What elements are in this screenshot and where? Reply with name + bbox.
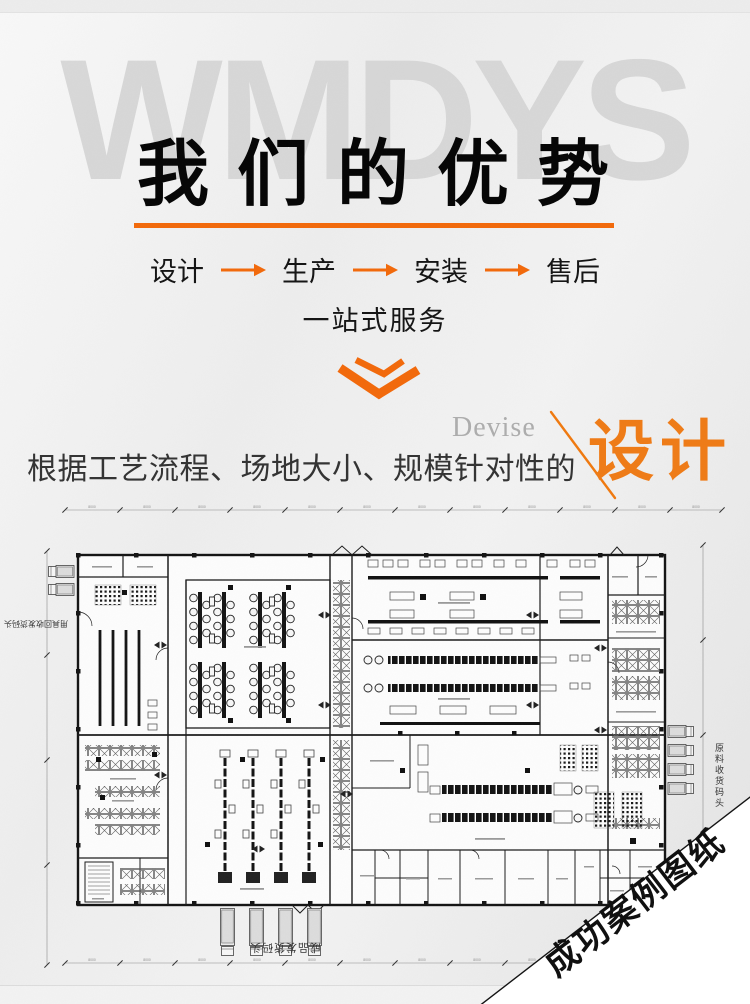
flow-step-install: 安装 [414, 250, 468, 289]
left-dock-label: 用具回收发货码头 [4, 619, 68, 629]
svg-text:8000: 8000 [363, 505, 371, 509]
svg-text:8000: 8000 [253, 505, 261, 509]
svg-text:8000: 8000 [308, 958, 316, 962]
svg-text:8000: 8000 [198, 958, 206, 962]
design-keyword: 设计 [588, 398, 732, 494]
design-description: 根据工艺流程、场地大小、规模针对性的 [27, 444, 576, 488]
svg-text:8000: 8000 [253, 958, 261, 962]
svg-text:8000: 8000 [198, 505, 206, 509]
service-flow: 设计 生产 安装 售后 [0, 250, 750, 289]
svg-text:8000: 8000 [528, 505, 536, 509]
svg-text:8000: 8000 [638, 505, 646, 509]
page-title: 我 们 的 优 势 [0, 136, 750, 215]
flow-step-design: 设计 [150, 250, 204, 289]
promo-page: WMDYS 我 们 的 优 势 设计 生产 安装 售后 一站式服务 Devise… [0, 0, 750, 1004]
top-edge-strip [0, 0, 750, 13]
design-english-label: Devise [452, 412, 536, 444]
title-underline [134, 223, 614, 228]
svg-text:8000: 8000 [143, 958, 151, 962]
flow-step-production: 生产 [282, 250, 336, 289]
svg-text:8000: 8000 [363, 958, 371, 962]
svg-text:8000: 8000 [88, 505, 96, 509]
svg-text:8000: 8000 [473, 505, 481, 509]
flow-arrow-icon [484, 263, 530, 277]
svg-text:8000: 8000 [418, 958, 426, 962]
double-chevron-down-icon [332, 354, 422, 400]
svg-text:8000: 8000 [583, 505, 591, 509]
svg-text:8000: 8000 [692, 505, 700, 509]
ribbon-banner: 成功案例图纸 [470, 780, 750, 1004]
bottom-dock-label: 成品发货码头 [249, 941, 321, 955]
flow-step-aftersale: 售后 [546, 250, 600, 289]
flow-arrow-icon [352, 263, 398, 277]
flow-arrow-icon [220, 263, 266, 277]
one-stop-service-label: 一站式服务 [0, 299, 750, 338]
svg-text:8000: 8000 [143, 505, 151, 509]
svg-text:8000: 8000 [308, 505, 316, 509]
svg-text:8000: 8000 [418, 505, 426, 509]
svg-text:8000: 8000 [88, 958, 96, 962]
